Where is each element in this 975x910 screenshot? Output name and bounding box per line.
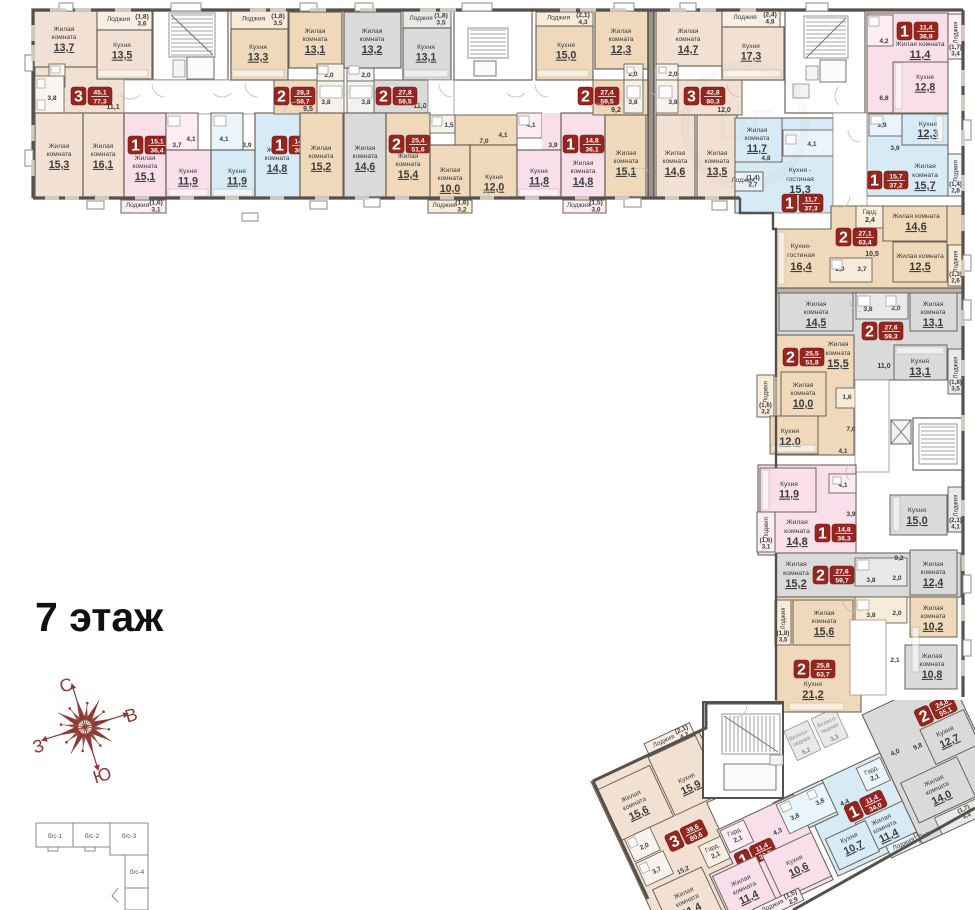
svg-text:Лоджия: Лоджия [953,251,960,273]
svg-text:27,8: 27,8 [398,90,411,97]
svg-text:21,2: 21,2 [802,689,823,701]
svg-text:3: 3 [74,89,83,106]
svg-text:11,4: 11,4 [920,25,933,32]
svg-text:11,9: 11,9 [227,176,247,188]
svg-text:15,7: 15,7 [914,180,935,192]
svg-text:3,9: 3,9 [242,142,251,149]
svg-text:(2,1): (2,1) [576,12,590,19]
svg-text:3,8: 3,8 [863,306,872,313]
svg-text:6,8: 6,8 [879,95,888,102]
svg-text:комната: комната [676,36,701,43]
svg-text:63,7: 63,7 [816,671,829,678]
svg-text:2: 2 [392,137,401,154]
svg-text:Жилая комната: Жилая комната [892,213,940,220]
svg-text:комната: комната [783,570,809,577]
svg-text:27,6: 27,6 [835,569,848,576]
svg-text:б/с-2: б/с-2 [85,832,100,840]
svg-text:(1,6): (1,6) [149,199,163,206]
svg-text:гостиная: гостиная [787,252,815,259]
svg-text:Лоджия: Лоджия [763,381,770,403]
svg-text:27,6: 27,6 [884,325,897,332]
svg-text:10,2: 10,2 [923,621,944,633]
svg-text:15,0: 15,0 [906,515,927,527]
svg-text:13,7: 13,7 [54,42,75,54]
svg-text:2,0: 2,0 [361,72,370,79]
svg-text:4,8: 4,8 [761,155,770,162]
svg-text:комната: комната [571,168,596,175]
svg-text:Кухня: Кухня [228,168,246,175]
svg-text:3,5: 3,5 [273,20,282,27]
svg-text:3,5: 3,5 [436,19,445,26]
svg-text:3,0: 3,0 [591,206,600,213]
svg-text:3,2: 3,2 [457,206,466,213]
svg-text:Жилая: Жилая [665,150,686,157]
svg-text:Кухня: Кухня [113,42,131,49]
svg-text:25,8: 25,8 [816,663,829,670]
svg-text:Жилая: Жилая [923,301,944,308]
svg-text:4,1: 4,1 [951,524,960,531]
svg-text:Лоджия: Лоджия [107,16,131,23]
svg-text:12,5: 12,5 [909,261,930,273]
svg-text:4,2: 4,2 [879,38,888,45]
svg-text:Жилая: Жилая [49,143,70,150]
svg-text:2,6: 2,6 [951,278,960,285]
svg-text:15,2: 15,2 [785,578,806,590]
svg-text:комната: комната [303,36,328,43]
svg-text:3,4: 3,4 [951,51,960,58]
svg-text:15,0: 15,0 [556,50,577,62]
svg-text:Жилая: Жилая [93,143,114,150]
svg-text:Жилая: Жилая [362,28,383,35]
svg-text:2: 2 [379,89,388,106]
svg-text:10,0: 10,0 [793,398,814,410]
svg-text:Лоджия: Лоджия [409,15,433,22]
svg-text:Кухня: Кухня [742,43,760,50]
svg-text:Кухня: Кухня [249,44,267,51]
svg-text:63,4: 63,4 [858,239,871,246]
svg-text:51,6: 51,6 [411,146,424,153]
svg-text:1: 1 [785,196,794,213]
svg-text:Кухня: Кухня [417,44,435,51]
svg-text:Жилая: Жилая [355,145,376,152]
svg-text:12,4: 12,4 [923,577,944,589]
svg-text:36,3: 36,3 [837,535,850,542]
svg-text:1: 1 [275,138,284,155]
svg-text:1,6: 1,6 [842,394,851,401]
svg-text:10,8: 10,8 [922,669,943,681]
svg-text:Лоджия: Лоджия [733,14,757,21]
svg-text:комната: комната [920,661,945,668]
svg-text:комната: комната [921,309,946,316]
svg-text:Жилая: Жилая [785,561,807,568]
svg-text:Кухня: Кухня [804,681,823,688]
svg-text:51,8: 51,8 [805,359,818,366]
svg-text:Жилая: Жилая [611,28,632,35]
svg-text:36,9: 36,9 [919,33,932,40]
svg-text:комната: комната [609,36,634,43]
svg-text:36,4: 36,4 [150,147,163,154]
svg-text:2: 2 [865,324,874,341]
svg-text:14,8: 14,8 [837,527,850,534]
svg-text:Жилая: Жилая [54,26,75,33]
svg-text:3,8: 3,8 [361,99,370,106]
svg-text:13,5: 13,5 [112,50,133,62]
svg-text:11,4: 11,4 [910,49,932,61]
svg-text:2,8: 2,8 [951,188,960,195]
svg-text:4,1: 4,1 [807,141,816,148]
svg-text:2: 2 [797,662,806,679]
svg-text:3,5: 3,5 [951,386,960,393]
svg-text:3,8: 3,8 [321,99,330,106]
svg-text:Жилая: Жилая [305,28,326,35]
svg-text:15,1: 15,1 [150,139,163,146]
svg-text:2,4: 2,4 [865,217,875,224]
svg-text:3,7: 3,7 [172,142,181,149]
svg-text:7,0: 7,0 [846,426,855,433]
svg-text:комната: комната [921,613,946,620]
svg-text:Кухня: Кухня [908,507,927,514]
svg-text:комната: комната [438,175,463,182]
svg-text:14,6: 14,6 [905,221,926,233]
svg-text:3,8: 3,8 [628,99,637,106]
svg-text:15,4: 15,4 [398,169,419,181]
svg-text:4,1: 4,1 [498,132,507,139]
svg-text:45,1: 45,1 [93,90,106,97]
svg-text:комната: комната [784,528,810,535]
svg-text:1,5: 1,5 [444,122,453,129]
svg-text:14,7: 14,7 [678,44,699,56]
svg-text:Лоджия: Лоджия [763,517,770,539]
svg-text:1: 1 [870,173,879,190]
svg-text:13,1: 13,1 [923,317,944,329]
svg-text:14,8: 14,8 [573,176,594,188]
svg-text:58,7: 58,7 [296,98,309,105]
svg-text:2: 2 [839,230,848,247]
svg-text:Лоджия: Лоджия [567,202,591,209]
svg-text:11,9: 11,9 [178,176,198,188]
svg-text:Кухня: Кухня [916,74,934,81]
svg-text:(1,6): (1,6) [455,199,469,206]
svg-text:Лоджия: Лоджия [953,495,960,517]
svg-text:15,2: 15,2 [311,161,332,173]
svg-text:ЦГ: ЦГ [717,101,774,150]
svg-text:комната: комната [812,618,837,625]
svg-text:13,1: 13,1 [909,366,930,378]
svg-text:3,9: 3,9 [890,145,899,152]
svg-text:1: 1 [900,24,909,41]
svg-text:3,8: 3,8 [866,577,875,584]
svg-text:28,3: 28,3 [296,90,309,97]
svg-text:(1,8): (1,8) [434,12,448,19]
svg-text:Жилая: Жилая [922,653,943,660]
svg-text:(1,5): (1,5) [589,199,603,206]
svg-text:9,5: 9,5 [303,106,313,113]
svg-text:15,1: 15,1 [616,166,637,178]
svg-text:59,7: 59,7 [835,577,848,584]
svg-text:б/с-1: б/с-1 [48,832,63,840]
svg-text:15,5: 15,5 [827,358,848,370]
svg-text:Жилая: Жилая [806,301,827,308]
svg-text:Жилая: Жилая [440,167,461,174]
svg-text:Жилая комната: Жилая комната [896,253,944,260]
svg-text:Жилая: Жилая [828,341,849,348]
svg-text:Жилая: Жилая [135,155,156,162]
svg-text:14,6: 14,6 [665,166,686,178]
svg-text:9,2: 9,2 [611,107,621,114]
svg-text:2: 2 [816,568,825,585]
svg-text:Кухня: Кухня [919,121,938,128]
svg-text:59,5: 59,5 [398,98,411,105]
svg-text:комната: комната [265,155,290,162]
svg-text:Лоджия: Лоджия [126,202,150,209]
svg-text:Кухня: Кухня [911,358,930,365]
svg-text:1: 1 [131,138,140,155]
svg-text:4,3: 4,3 [578,19,587,26]
svg-text:37,2: 37,2 [889,182,902,189]
svg-text:77,3: 77,3 [93,98,106,105]
svg-text:Жилая: Жилая [914,163,936,170]
svg-text:3,8: 3,8 [668,99,677,106]
svg-text:11,7: 11,7 [805,197,818,204]
svg-text:3,6: 3,6 [137,20,146,27]
svg-text:3,2: 3,2 [761,409,770,416]
svg-text:Кухня: Кухня [530,168,548,175]
svg-text:комната: комната [921,569,946,576]
svg-text:14,8: 14,8 [585,138,598,145]
svg-text:12,8: 12,8 [915,82,936,94]
svg-text:(1,8): (1,8) [135,13,149,20]
svg-text:27,1: 27,1 [858,231,871,238]
svg-text:11,8: 11,8 [529,176,549,188]
svg-text:2,0: 2,0 [892,575,901,582]
svg-text:комната: комната [804,309,829,316]
svg-text:(2,4): (2,4) [763,11,777,18]
svg-text:13,1: 13,1 [416,52,437,64]
svg-text:комната: комната [826,350,851,357]
svg-text:3,1: 3,1 [762,544,771,551]
svg-text:Лоджия: Лоджия [432,202,456,209]
svg-text:2: 2 [786,350,795,367]
svg-text:10,0: 10,0 [440,183,461,195]
svg-text:16,1: 16,1 [93,159,114,171]
svg-text:12,3: 12,3 [611,44,632,56]
svg-text:4,8: 4,8 [765,18,774,25]
svg-text:12,3: 12,3 [917,128,938,140]
svg-text:14,8: 14,8 [786,536,807,548]
svg-text:Кухня: Кухня [557,42,575,49]
svg-text:12,0: 12,0 [484,182,505,194]
svg-text:7,0: 7,0 [479,138,488,145]
svg-text:Кухня: Кухня [179,168,197,175]
svg-text:25,4: 25,4 [411,138,424,145]
svg-text:42,8: 42,8 [706,90,719,97]
svg-text:Кухня: Кухня [781,428,800,435]
svg-text:Жилая: Жилая [786,519,808,526]
svg-text:Кухня: Кухня [485,174,503,181]
svg-text:Лоджия: Лоджия [780,608,787,630]
svg-text:комната: комната [663,158,688,165]
svg-text:комната: комната [396,161,421,168]
svg-text:13,2: 13,2 [362,44,383,56]
svg-text:комната: комната [614,158,639,165]
svg-text:Лоджия: Лоджия [242,16,266,23]
svg-text:14,8: 14,8 [267,163,288,175]
svg-text:комната: комната [133,163,158,170]
svg-text:15,7: 15,7 [889,174,902,181]
svg-text:комната: комната [791,390,816,397]
svg-text:Лоджия: Лоджия [547,15,571,22]
svg-text:2: 2 [277,89,286,106]
svg-text:2,0: 2,0 [892,610,901,617]
svg-text:Жилая: Жилая [923,605,944,612]
svg-text:11,1: 11,1 [106,104,119,111]
svg-text:2,1: 2,1 [890,657,899,664]
svg-text:(1,8): (1,8) [271,13,285,20]
svg-text:3,8: 3,8 [47,95,56,102]
svg-text:3,1: 3,1 [151,206,160,213]
svg-text:комната: комната [353,153,378,160]
svg-text:15,1: 15,1 [135,171,156,183]
svg-text:Кухня-: Кухня- [791,243,811,250]
svg-text:Жилая: Жилая [923,561,944,568]
svg-text:Жилая: Жилая [793,382,814,389]
svg-text:Кухня: Кухня [780,481,798,488]
svg-text:11,9: 11,9 [779,489,799,501]
svg-text:13,1: 13,1 [305,44,326,56]
svg-text:25,5: 25,5 [805,351,818,358]
svg-text:2: 2 [581,89,590,106]
svg-text:14,6: 14,6 [355,161,376,173]
svg-text:Лоджия: Лоджия [953,357,960,379]
svg-text:Гард.: Гард. [862,209,877,216]
svg-text:б/с-3: б/с-3 [122,832,137,840]
svg-text:4,1: 4,1 [219,136,228,143]
svg-text:4,1: 4,1 [838,448,847,455]
svg-text:Жилая: Жилая [707,150,728,157]
svg-text:3,7: 3,7 [857,266,866,273]
svg-text:4,1: 4,1 [186,136,195,143]
svg-text:комната: комната [912,172,938,179]
svg-text:11,0: 11,0 [877,363,890,370]
svg-text:7 этаж: 7 этаж [35,594,164,640]
svg-text:9,2: 9,2 [894,555,903,562]
svg-text:14,5: 14,5 [806,317,827,329]
svg-text:1: 1 [818,526,827,543]
svg-text:комната: комната [52,34,77,41]
svg-text:10,5: 10,5 [865,251,879,258]
svg-text:59,3: 59,3 [884,333,897,340]
svg-text:Жилая: Жилая [311,145,332,152]
svg-text:15,6: 15,6 [814,626,835,638]
svg-text:б/с-4: б/с-4 [130,868,145,876]
svg-text:2,0: 2,0 [668,71,677,78]
svg-text:Жилая: Жилая [616,150,637,157]
svg-text:3,9: 3,9 [548,142,557,149]
svg-text:3,5: 3,5 [779,637,788,644]
svg-text:комната: комната [91,151,116,158]
svg-text:комната: комната [360,36,385,43]
svg-text:комната: комната [309,153,334,160]
svg-text:37,3: 37,3 [804,205,817,212]
svg-text:15,3: 15,3 [49,159,70,171]
svg-text:комната: комната [47,151,72,158]
svg-text:16,4: 16,4 [790,261,812,273]
svg-text:3,9: 3,9 [846,511,855,518]
svg-text:27,4: 27,4 [600,90,613,97]
svg-text:гостиная: гостиная [786,176,814,183]
svg-text:3,8: 3,8 [866,612,875,619]
svg-text:Жилая комната: Жилая комната [895,41,944,48]
svg-text:комната: комната [705,158,730,165]
svg-text:Лоджия: Лоджия [953,160,960,182]
svg-text:Жилая: Жилая [814,610,835,617]
svg-text:Жилая: Жилая [573,160,594,167]
svg-text:13,3: 13,3 [248,52,269,64]
svg-text:Жилая: Жилая [398,153,419,160]
svg-text:Жилая: Жилая [678,28,699,35]
svg-text:36,1: 36,1 [585,146,598,153]
svg-text:1: 1 [566,137,575,154]
svg-text:Лоджия: Лоджия [953,22,960,44]
